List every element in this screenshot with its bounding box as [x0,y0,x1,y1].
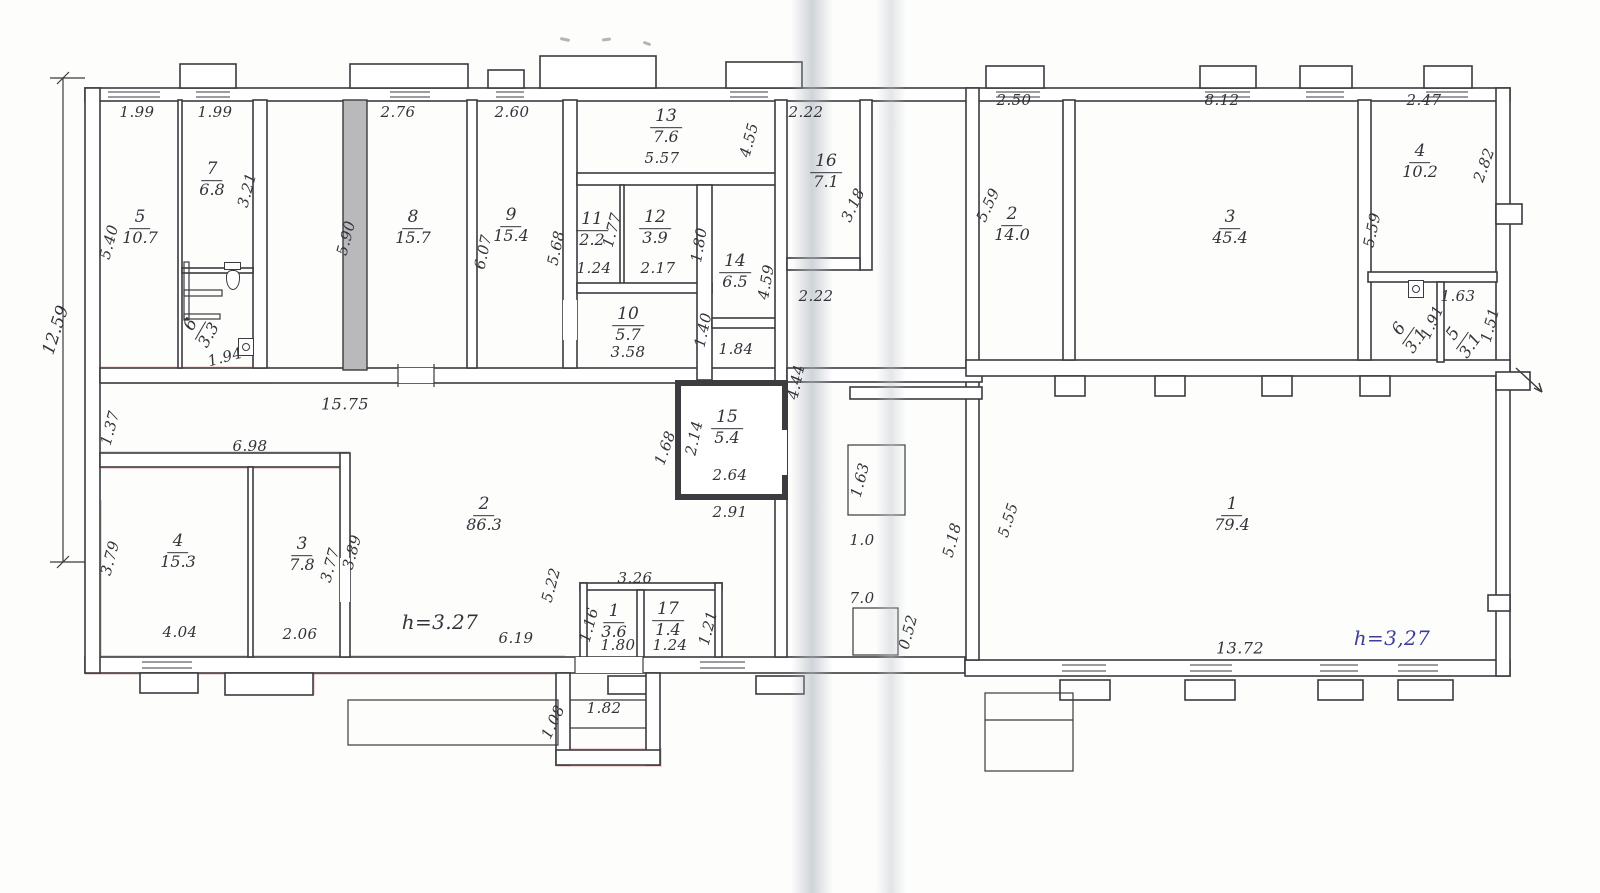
room-area: 15.7 [395,230,431,247]
dimension-label: 2.17 [641,259,676,277]
ceiling-height-note: h=3,27 [1354,626,1431,650]
sink-icon [1408,280,1424,298]
room-number: 5 [130,209,151,229]
room-label: 915.4 [493,207,529,245]
room-label: 105.7 [612,306,644,344]
room-label: 171.4 [652,601,684,639]
dimension-label: 1.24 [577,259,612,277]
dimension-label: 2.64 [713,466,748,484]
room-number: 8 [403,209,424,229]
room-label: 155.4 [711,409,743,447]
room-area: 10.2 [1402,164,1438,181]
room-number: 1 [604,603,625,623]
sink-icon [238,338,254,356]
dimension-label: 1.82 [587,699,622,717]
room-area: 14.0 [994,227,1030,244]
room-label: 37.8 [289,536,314,574]
dimension-label: 6.98 [233,437,268,455]
room-area: 7.8 [289,557,314,574]
dimension-label: 2.91 [713,503,748,521]
room-number: 10 [612,306,644,326]
dimension-label: 2.76 [381,103,416,121]
room-area: 15.3 [160,554,196,571]
room-area: 3.9 [639,230,671,247]
dimension-label: 2.60 [495,103,530,121]
room-area: 7.6 [650,129,682,146]
dimension-label: 13.72 [1216,639,1264,658]
dimension-label: 8.12 [1205,91,1240,109]
dimension-label: 1.84 [719,340,754,358]
room-label: 146.5 [719,253,751,291]
dimension-label: 2.22 [799,287,834,305]
room-label: 345.4 [1212,209,1248,247]
room-label: 214.0 [994,206,1030,244]
dimension-label: 1.80 [601,636,636,654]
room-label: 123.9 [639,209,671,247]
dimension-label: 1.99 [198,103,233,121]
dimension-label: 2.47 [1407,91,1442,109]
room-number: 9 [501,207,522,227]
dimension-label: 15.75 [321,395,369,414]
dimension-label: 2.50 [997,91,1032,109]
room-label: 179.4 [1214,496,1250,534]
room-area: 45.4 [1212,230,1248,247]
dimension-label: 2.06 [283,625,318,643]
room-area: 5.4 [711,430,743,447]
room-area: 7.1 [810,174,842,191]
room-label: 410.2 [1402,143,1438,181]
dimension-label: 1.24 [653,636,688,654]
room-label: 415.3 [160,533,196,571]
room-number: 1 [1222,496,1243,516]
room-number: 4 [1410,143,1431,163]
dimension-label: 5.57 [645,149,680,167]
room-number: 17 [652,601,684,621]
floorplan-sheet: 510.776.863.3815.7915.4112.2123.9137.610… [0,0,1600,893]
room-area: 10.7 [122,230,158,247]
room-area: 5.7 [612,327,644,344]
dimension-label: 7.0 [849,589,874,607]
room-number: 2 [1002,206,1023,226]
dimension-label: 3.26 [618,569,653,587]
room-number: 15 [711,409,743,429]
room-number: 12 [639,209,671,229]
room-number: 13 [650,108,682,128]
room-number: 14 [719,253,751,273]
room-number: 4 [168,533,189,553]
room-number: 7 [202,161,223,181]
dimension-label: 1.99 [120,103,155,121]
room-area: 79.4 [1214,517,1250,534]
room-number: 2 [474,496,495,516]
room-number: 3 [292,536,313,556]
room-area: 15.4 [493,228,529,245]
dimension-label: 1.63 [1441,287,1476,305]
room-number: 3 [1220,209,1241,229]
ceiling-height-note: h=3.27 [402,610,479,634]
dimension-label: 1.0 [849,531,874,549]
room-number: 16 [810,153,842,173]
dimension-label: 3.58 [611,343,646,361]
dimension-label: 6.19 [499,629,534,647]
room-label: 76.8 [199,161,224,199]
room-label: 167.1 [810,153,842,191]
room-area: 6.8 [199,182,224,199]
room-label: 137.6 [650,108,682,146]
room-label: 815.7 [395,209,431,247]
room-label: 510.7 [122,209,158,247]
dimension-label: 2.22 [789,103,824,121]
room-label: 286.3 [466,496,502,534]
room-area: 86.3 [466,517,502,534]
dimension-label: 4.04 [163,623,198,641]
room-area: 6.5 [719,274,751,291]
